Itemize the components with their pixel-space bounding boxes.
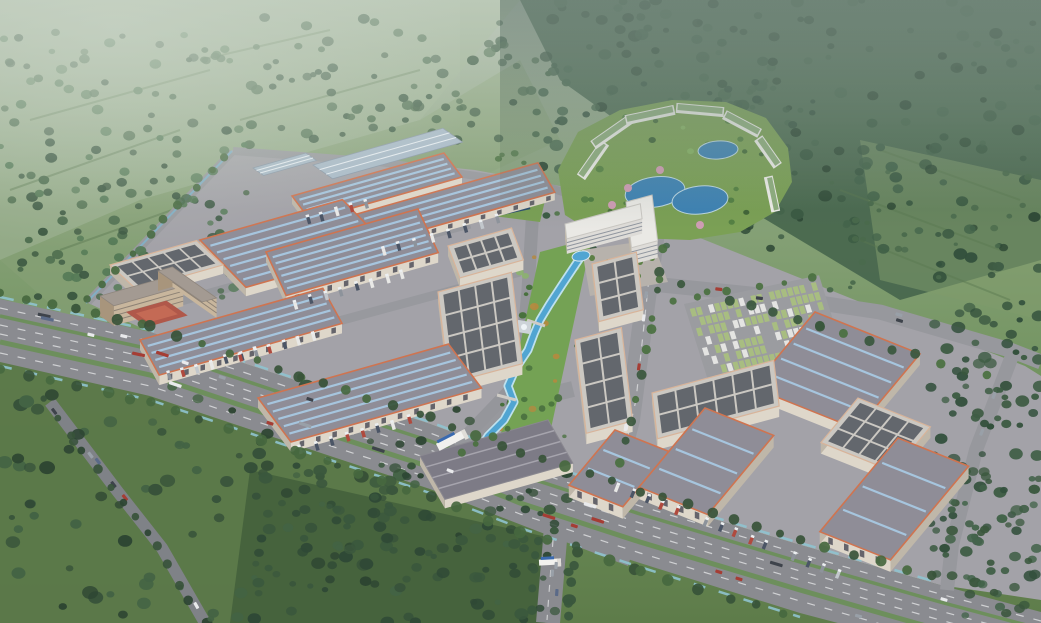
factory-n2 [592,252,643,332]
roof-panel [446,312,463,335]
vehicle [550,569,554,576]
haze-top-right [500,0,1041,230]
aerial-site-rendering [0,0,1041,623]
roof-panel [462,308,479,331]
roof-panel [460,286,477,309]
haze-top-left [0,0,460,250]
roof-panel [476,282,493,305]
roof-panel [465,329,482,352]
roof-panel [468,350,485,373]
roof-panel [484,346,501,369]
roof-panel [500,342,517,365]
roof-panel [495,299,512,322]
roof-panel [481,325,498,348]
atmosphere [0,0,1041,250]
aerial-site-rendering-frame [0,0,1041,623]
roof-panel [479,303,496,326]
vehicle [555,589,559,596]
roof-panel [498,320,515,343]
roof-panel [443,291,460,314]
vehicle [554,562,558,569]
roof-panel [493,278,510,301]
